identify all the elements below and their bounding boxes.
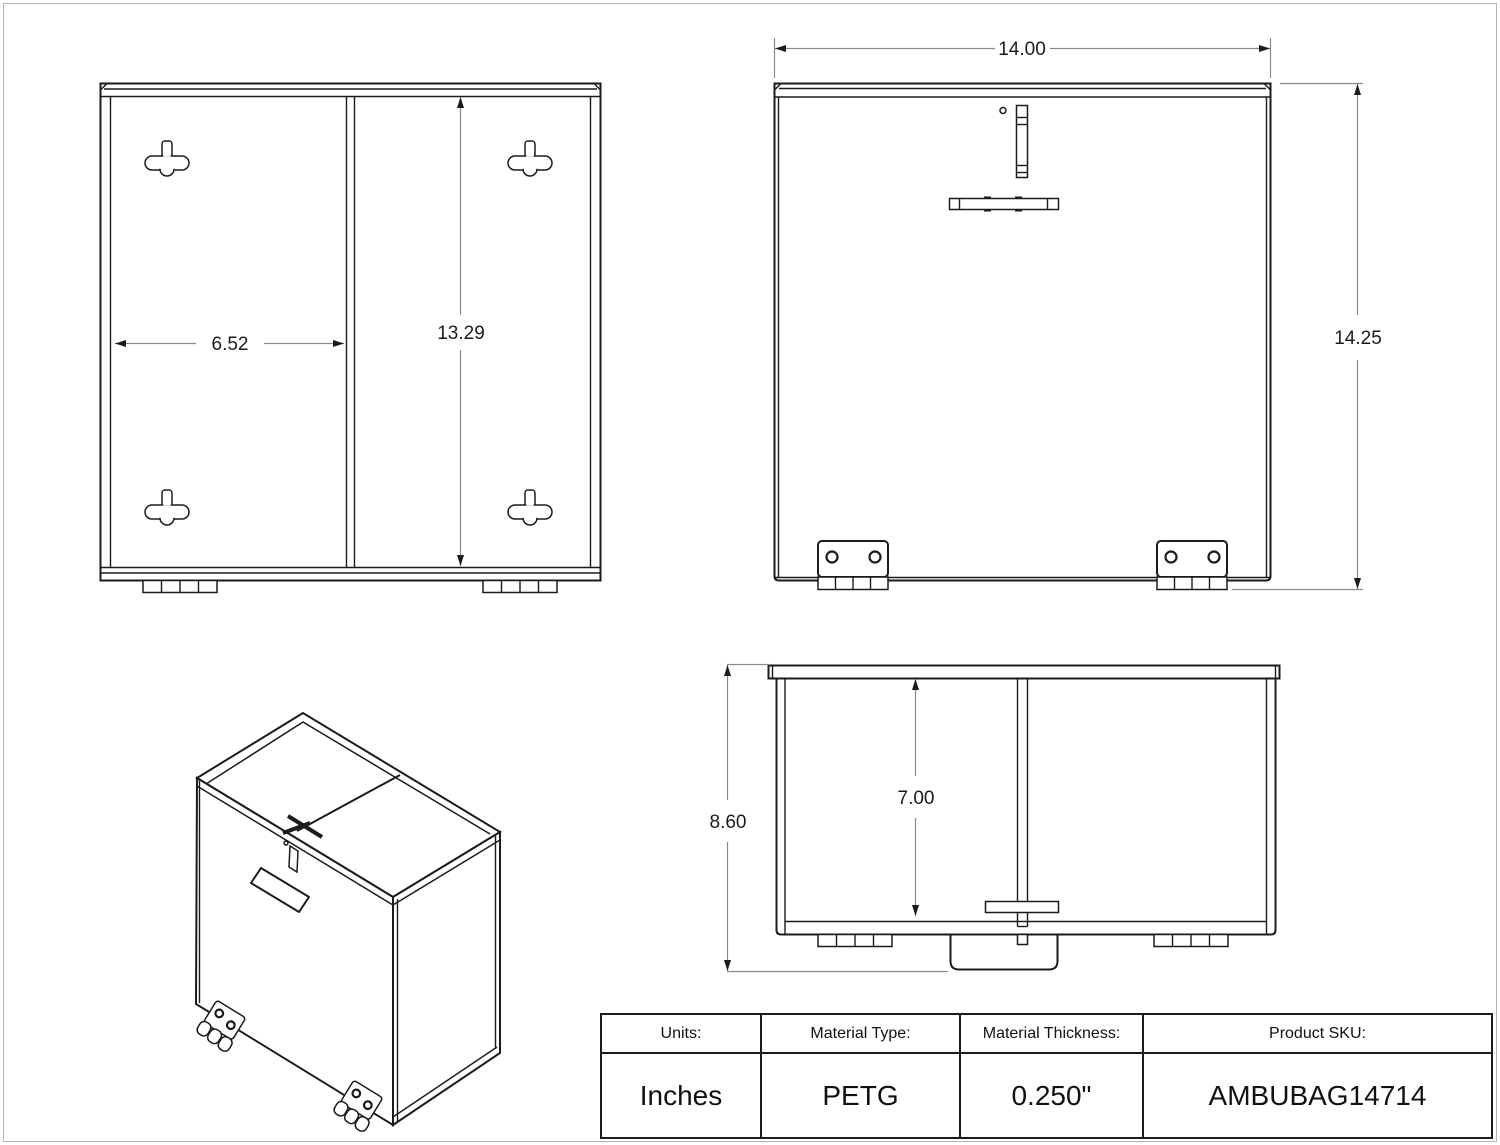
material-type-header: Material Type: [762,1015,959,1054]
latch-slot [1017,106,1028,178]
drawing-page: 6.52 13.29 [0,0,1500,1145]
tab-strip [143,581,217,593]
dimension-front-width: 14.00 [775,38,1271,78]
material-type-value: PETG [762,1054,959,1137]
tab-strip [818,935,892,947]
hinge-icon [818,541,888,590]
dim-label-front-height: 14.25 [1334,328,1382,349]
drawing-canvas: 6.52 13.29 [0,0,1500,1145]
dim-label-back-height: 13.29 [437,323,485,344]
latch-slot [289,846,298,872]
product-sku-value: AMBUBAG14714 [1144,1054,1491,1137]
title-block-product-sku-column: Product SKU: AMBUBAG14714 [1142,1015,1491,1137]
dimension-top-depth: 8.60 [710,665,948,972]
handle-slot [950,197,1059,212]
units-header: Units: [602,1015,760,1054]
tab-strip [1154,935,1228,947]
dim-label-top-depth: 8.60 [710,812,747,833]
dim-label-top-inner-depth: 7.00 [898,788,935,809]
divider-wall [986,679,1059,945]
title-block: Units: Inches Material Type: PETG Materi… [600,1013,1493,1139]
dim-label-front-width: 14.00 [998,39,1046,60]
title-block-units-column: Units: Inches [602,1015,760,1137]
material-thickness-value: 0.250" [961,1054,1142,1137]
dimension-top-inner-depth: 7.00 [898,679,935,916]
title-block-material-thickness-column: Material Thickness: 0.250" [959,1015,1142,1137]
units-value: Inches [602,1054,760,1137]
view-isometric [194,713,500,1133]
view-top: 8.60 7.00 [710,665,1280,972]
bag-cutout [951,935,1058,970]
title-block-material-type-column: Material Type: PETG [760,1015,959,1137]
hinge-icon [1157,541,1227,590]
product-sku-header: Product SKU: [1144,1015,1491,1054]
view-back-panel: 6.52 13.29 [101,84,601,593]
tab-strip [483,581,557,593]
view-front-panel: 14.00 14.25 [775,38,1382,590]
material-thickness-header: Material Thickness: [961,1015,1142,1054]
dim-label-back-width: 6.52 [212,334,249,355]
